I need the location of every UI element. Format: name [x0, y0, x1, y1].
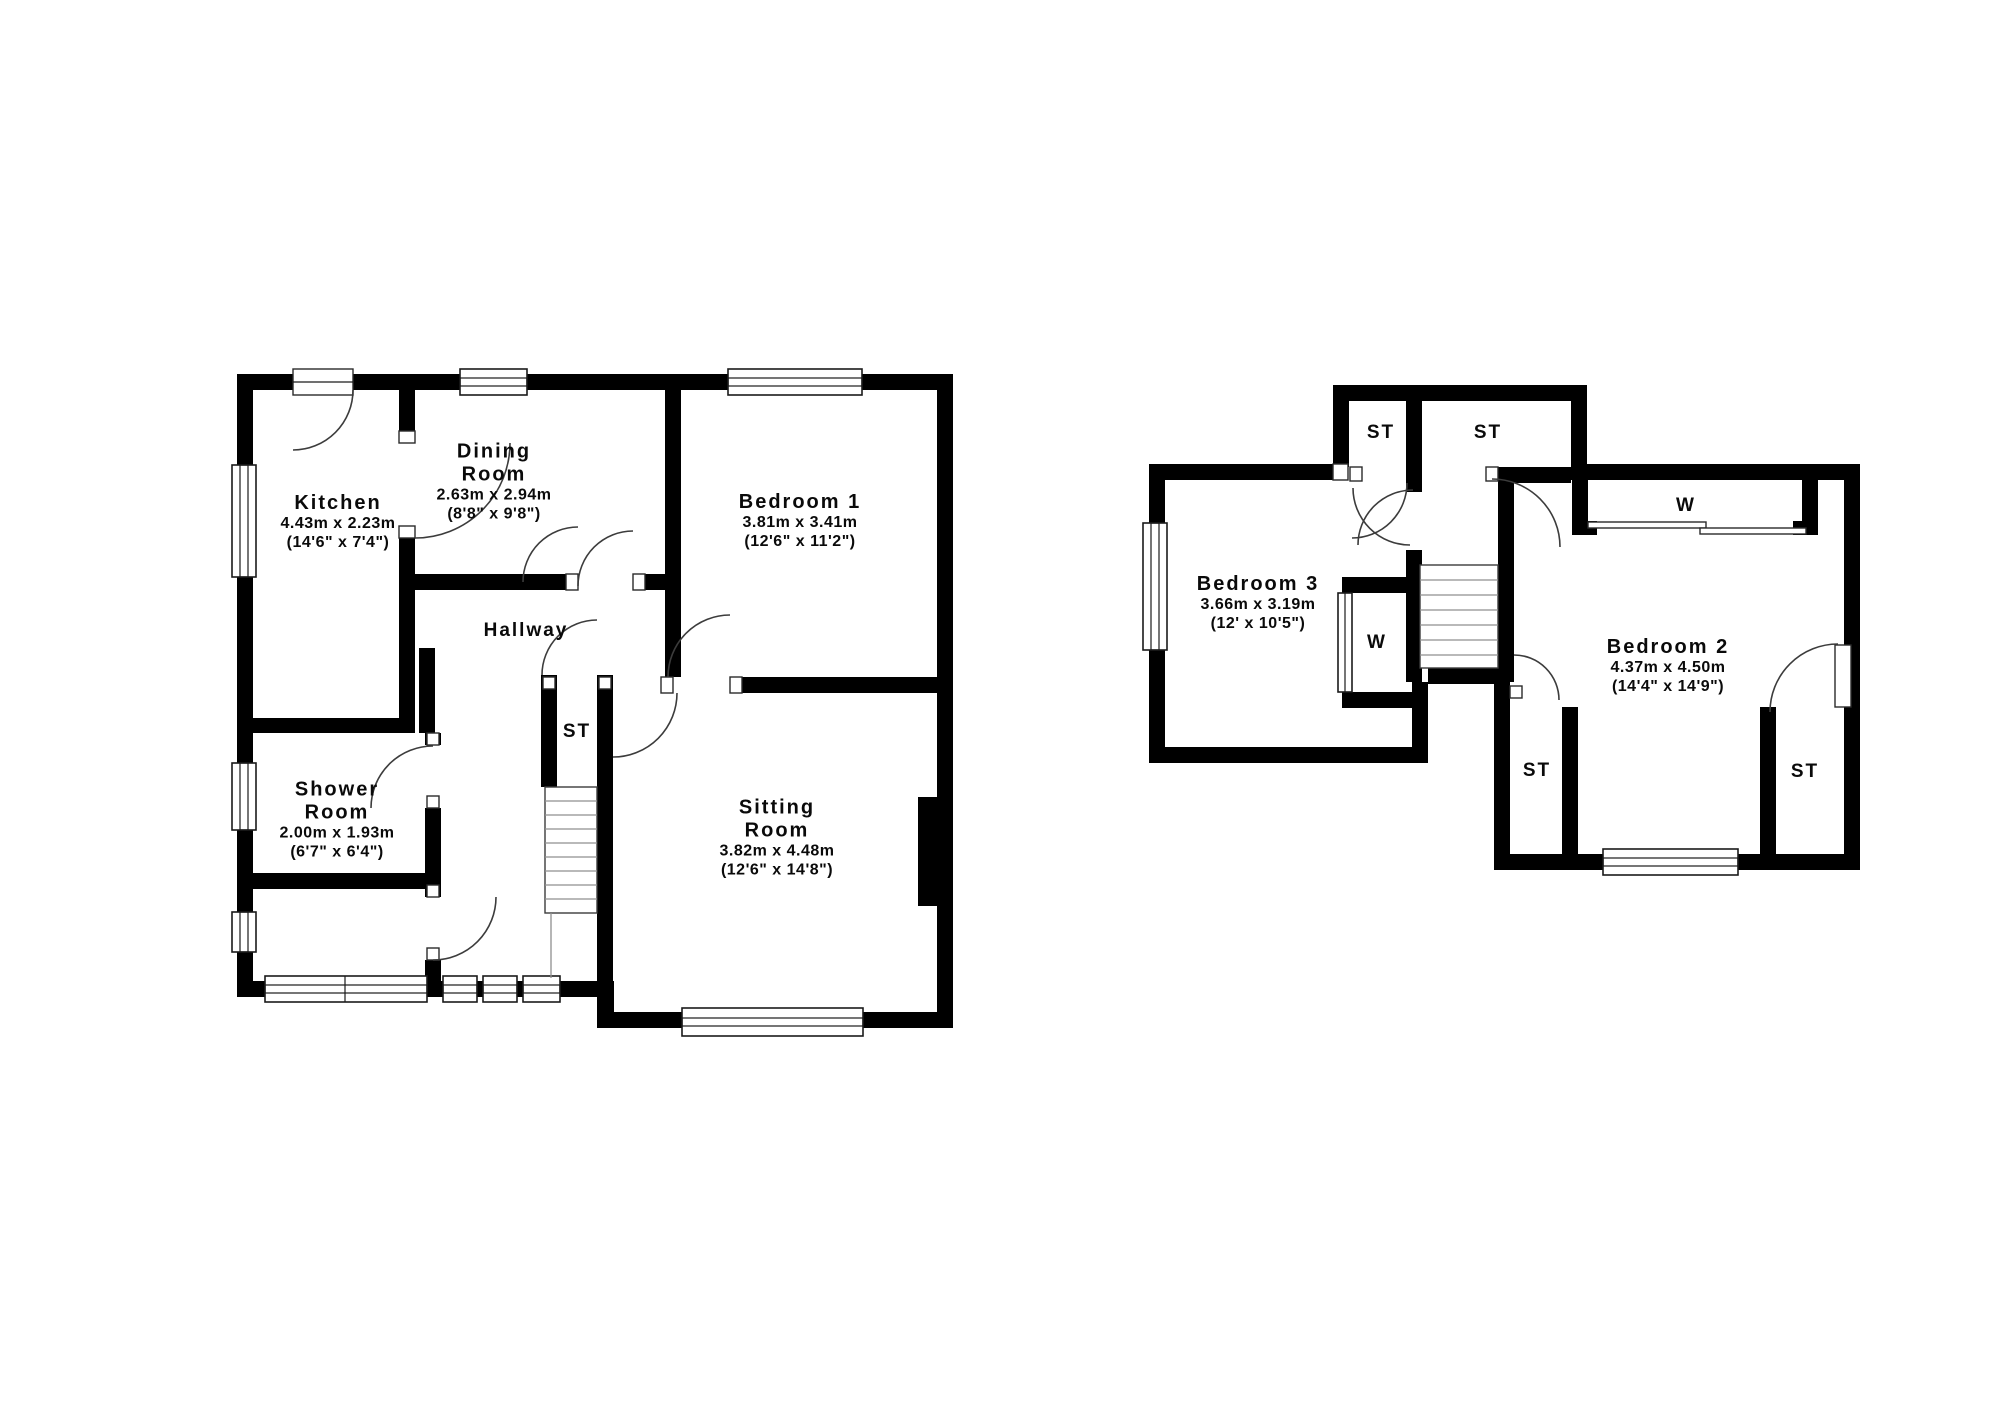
door-post	[399, 431, 415, 443]
room-name: Dining	[436, 440, 551, 463]
bedroom2-window	[1603, 849, 1738, 875]
room-imperial: (14'4" x 14'9")	[1607, 678, 1729, 697]
porch-window	[232, 912, 256, 952]
door-leaf	[1835, 645, 1851, 707]
door-post	[543, 677, 555, 689]
room-imperial: (8'8" x 9'8")	[436, 505, 551, 524]
wall	[399, 538, 415, 733]
floorplan-drawing	[0, 0, 2000, 1414]
room-name: Room	[279, 801, 394, 824]
bedroom2-label: Bedroom 2 4.37m x 4.50m (14'4" x 14'9")	[1607, 636, 1729, 696]
room-name: Bedroom 1	[739, 491, 861, 514]
wall	[1428, 668, 1510, 684]
room-metric: 4.43m x 2.23m	[280, 515, 395, 534]
room-metric: 2.00m x 1.93m	[279, 825, 394, 844]
wardrobe-left-label: W	[1367, 632, 1387, 654]
window	[232, 912, 256, 952]
floorplan-page: Kitchen 4.43m x 2.23m (14'6" x 7'4") Din…	[0, 0, 2000, 1414]
room-name: Bedroom 3	[1197, 573, 1319, 596]
kitchen-window	[232, 465, 256, 577]
entrance-door	[293, 369, 353, 450]
wardrobe-sliding-doors	[1588, 522, 1806, 534]
sitting-door-arc	[613, 693, 677, 757]
room-name: W	[1367, 632, 1387, 654]
room-imperial: (12'6" x 11'2")	[739, 533, 861, 552]
wall	[415, 574, 578, 590]
porch-door-arc	[433, 897, 496, 960]
door-post	[399, 526, 415, 538]
wall	[665, 390, 681, 677]
room-metric: 3.66m x 3.19m	[1197, 596, 1319, 615]
room-imperial: (12' x 10'5")	[1197, 615, 1319, 634]
wall	[1342, 692, 1412, 708]
room-metric: 4.37m x 4.50m	[1607, 659, 1729, 678]
window	[523, 976, 560, 1002]
wall	[597, 675, 613, 1028]
sitting-room-label: Sitting Room 3.82m x 4.48m (12'6" x 14'8…	[719, 796, 834, 879]
door-post	[599, 677, 611, 689]
wall	[425, 808, 441, 897]
window	[460, 369, 527, 395]
door-post	[730, 677, 742, 693]
door-post	[427, 885, 439, 897]
room-imperial: (12'6" x 14'8")	[719, 861, 834, 880]
kitchen-label: Kitchen 4.43m x 2.23m (14'6" x 7'4")	[280, 492, 395, 552]
door-post	[566, 574, 578, 590]
door-post	[1350, 467, 1362, 481]
room-name: Kitchen	[280, 492, 395, 515]
window	[1143, 523, 1167, 650]
storage-bottom-left-label: ST	[1523, 760, 1551, 782]
wall	[730, 677, 937, 693]
room-name: W	[1676, 495, 1696, 517]
stair-body	[545, 787, 597, 913]
room-name: ST	[563, 721, 591, 743]
wall	[253, 873, 428, 889]
wall	[419, 648, 435, 733]
door-post	[427, 796, 439, 808]
ground-stairs	[545, 787, 597, 978]
wardrobe-top-label: W	[1676, 495, 1696, 517]
room-name: Room	[719, 819, 834, 842]
sliding-door	[1700, 528, 1806, 534]
door-post	[427, 948, 439, 960]
door-post	[661, 677, 673, 693]
window	[232, 763, 256, 830]
room-name: ST	[1367, 422, 1395, 444]
chimney-breast	[918, 797, 937, 906]
door-post	[633, 574, 645, 590]
storage-br-door-arc	[1770, 644, 1838, 712]
wall	[1342, 577, 1412, 593]
room-name: Shower	[279, 778, 394, 801]
door-post	[427, 733, 439, 745]
window	[232, 465, 256, 577]
bedroom1-window	[728, 369, 862, 395]
room-name: ST	[1523, 760, 1551, 782]
storage-bottom-right-label: ST	[1791, 761, 1819, 783]
hallway-label: Hallway	[484, 620, 569, 642]
dining-door-arc	[578, 531, 633, 586]
sliding-door	[1588, 522, 1706, 528]
door-post	[1510, 686, 1522, 698]
sitting-window	[682, 1008, 863, 1036]
window	[443, 976, 477, 1002]
rear-small-windows	[443, 976, 560, 1002]
wall	[937, 374, 953, 1028]
wall	[1760, 707, 1776, 854]
wall	[1498, 483, 1514, 682]
room-name: Sitting	[719, 796, 834, 819]
bedroom3-label: Bedroom 3 3.66m x 3.19m (12' x 10'5")	[1197, 573, 1319, 633]
room-metric: 3.82m x 4.48m	[719, 843, 834, 862]
wall	[253, 718, 415, 733]
bedroom1-label: Bedroom 1 3.81m x 3.41m (12'6" x 11'2")	[739, 491, 861, 551]
wall	[1149, 464, 1333, 480]
wall	[353, 374, 460, 390]
window	[483, 976, 517, 1002]
dining-room-label: Dining Room 2.63m x 2.94m (8'8" x 9'8")	[436, 440, 551, 523]
first-floor-stairs	[1420, 565, 1498, 668]
shower-window	[232, 763, 256, 830]
wall	[1333, 385, 1587, 401]
room-name: Hallway	[484, 620, 569, 642]
porch-bottom-window	[265, 976, 427, 1002]
ground-storage-label: ST	[563, 721, 591, 743]
room-name: Room	[436, 463, 551, 486]
wall	[527, 374, 728, 390]
window	[728, 369, 862, 395]
window	[1603, 849, 1738, 875]
wall	[1587, 464, 1860, 480]
wall	[1333, 385, 1349, 467]
window	[265, 976, 427, 1002]
room-name: ST	[1791, 761, 1819, 783]
room-name: ST	[1474, 422, 1502, 444]
wall	[1562, 707, 1578, 854]
storage-top-right-label: ST	[1474, 422, 1502, 444]
ground-floor-plan	[232, 369, 953, 1036]
room-imperial: (6'7" x 6'4")	[279, 843, 394, 862]
dining-window	[460, 369, 527, 395]
window	[682, 1008, 863, 1036]
wall	[541, 675, 557, 787]
room-name: Bedroom 2	[1607, 636, 1729, 659]
room-metric: 2.63m x 2.94m	[436, 487, 551, 506]
storage-top-left-label: ST	[1367, 422, 1395, 444]
wall	[1494, 682, 1510, 854]
bedroom3-window	[1143, 523, 1167, 650]
wall	[1571, 385, 1587, 480]
closet-side-panel	[1338, 593, 1352, 692]
door-post	[1333, 464, 1348, 480]
wall	[1406, 385, 1422, 492]
room-imperial: (14'6" x 7'4")	[280, 534, 395, 553]
shower-room-label: Shower Room 2.00m x 1.93m (6'7" x 6'4")	[279, 778, 394, 861]
room-metric: 3.81m x 3.41m	[739, 514, 861, 533]
wall	[1149, 747, 1428, 763]
wall	[1412, 682, 1428, 763]
door-arc	[293, 390, 353, 450]
